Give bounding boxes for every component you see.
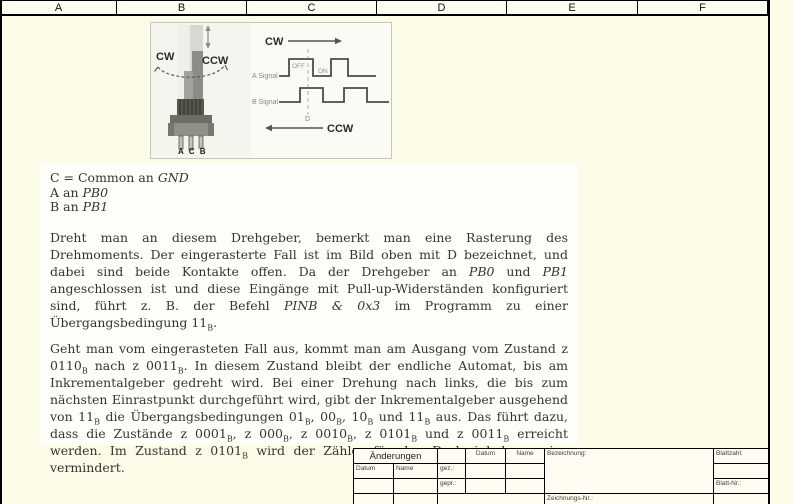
title-block-gez-datum-field	[466, 464, 506, 479]
timing-diagram: CW A Signal OFF ON B Signal D CCW	[252, 36, 389, 135]
title-block-datum-header: Datum	[466, 449, 506, 464]
drawing-sheet: { "colors": { "page_bg": "#fbfbe7", "pan…	[0, 0, 794, 504]
diagram-cw-label: CW	[265, 36, 284, 48]
photo-pins-label: A C B	[178, 147, 207, 156]
frame-header-rule	[0, 14, 770, 16]
frame-column-header: A B C D E F	[0, 0, 768, 15]
frame-column-f: F	[638, 1, 768, 15]
frame-column-d: D	[377, 1, 507, 15]
title-block-gepr: gepr.:	[438, 479, 466, 494]
title-block-gez: gez.:	[438, 464, 466, 479]
b-signal-waveform	[279, 88, 389, 102]
title-block-zeichnungs-nr: Zeichnungs-Nr.:	[545, 494, 714, 504]
title-block-blatt-nr: Blatt-Nr.:	[714, 479, 768, 494]
diagram-ccw-label: CCW	[327, 123, 354, 135]
a-signal-label: A Signal	[252, 73, 278, 80]
title-block-gez-name-field	[506, 464, 545, 479]
cw-arrowhead-icon	[335, 38, 342, 44]
encoder-figure: CW CCW A C B CW A Signal OFF ON B Signal…	[150, 22, 392, 159]
frame-column-a: A	[0, 1, 117, 15]
photo-ccw-label: CCW	[202, 55, 229, 67]
frame-border-right	[768, 0, 770, 504]
photo-cw-label: CW	[156, 51, 175, 63]
title-block-zeichnungs-nr-field	[714, 494, 768, 504]
title-block-bezeichnung: Bezeichnung:	[545, 449, 714, 494]
title-block-empty-cell	[438, 449, 466, 464]
scanned-text-panel: C = Common an GND A an PB0 B an PB1 Dreh…	[40, 163, 577, 445]
title-block-blattzahl: Blattzahl:	[714, 449, 768, 464]
title-block: Änderungen Datum Name Bezeichnung: Blatt…	[353, 448, 768, 504]
title-block-datum-sub: Datum	[354, 464, 394, 479]
off-label: OFF	[292, 63, 305, 70]
frame-column-c: C	[247, 1, 377, 15]
frame-column-b: B	[117, 1, 247, 15]
title-block-change-datum-field	[354, 479, 394, 494]
title-block-row4-c1	[354, 494, 394, 504]
connection-line-b: B an PB1	[50, 200, 568, 215]
title-block-blattzahl-field	[714, 464, 768, 479]
title-block-name-header: Name	[506, 449, 545, 464]
connection-line-common: C = Common an GND	[50, 171, 568, 186]
on-label: ON	[318, 68, 328, 75]
frame-column-e: E	[507, 1, 638, 15]
title-block-row4-merged	[438, 494, 545, 504]
paragraph-detent: Dreht man an diesem Drehgeber, bemerkt m…	[50, 229, 568, 331]
title-block-change-name-field	[394, 479, 438, 494]
encoder-figure-svg: CW CCW A C B CW A Signal OFF ON B Signal…	[151, 23, 391, 158]
title-block-gepr-name-field	[506, 479, 545, 494]
detent-label: D	[305, 116, 310, 123]
title-block-row4-c2	[394, 494, 438, 504]
frame-border-left	[0, 0, 2, 504]
title-block-gepr-datum-field	[466, 479, 506, 494]
connection-line-a: A an PB0	[50, 186, 568, 201]
title-block-name-sub: Name	[394, 464, 438, 479]
b-signal-label: B Signal	[252, 99, 279, 106]
rotary-encoder-photo-icon: CW CCW A C B	[151, 23, 251, 158]
title-block-aenderungen: Änderungen	[354, 449, 438, 464]
ccw-arrowhead-icon	[265, 125, 272, 131]
